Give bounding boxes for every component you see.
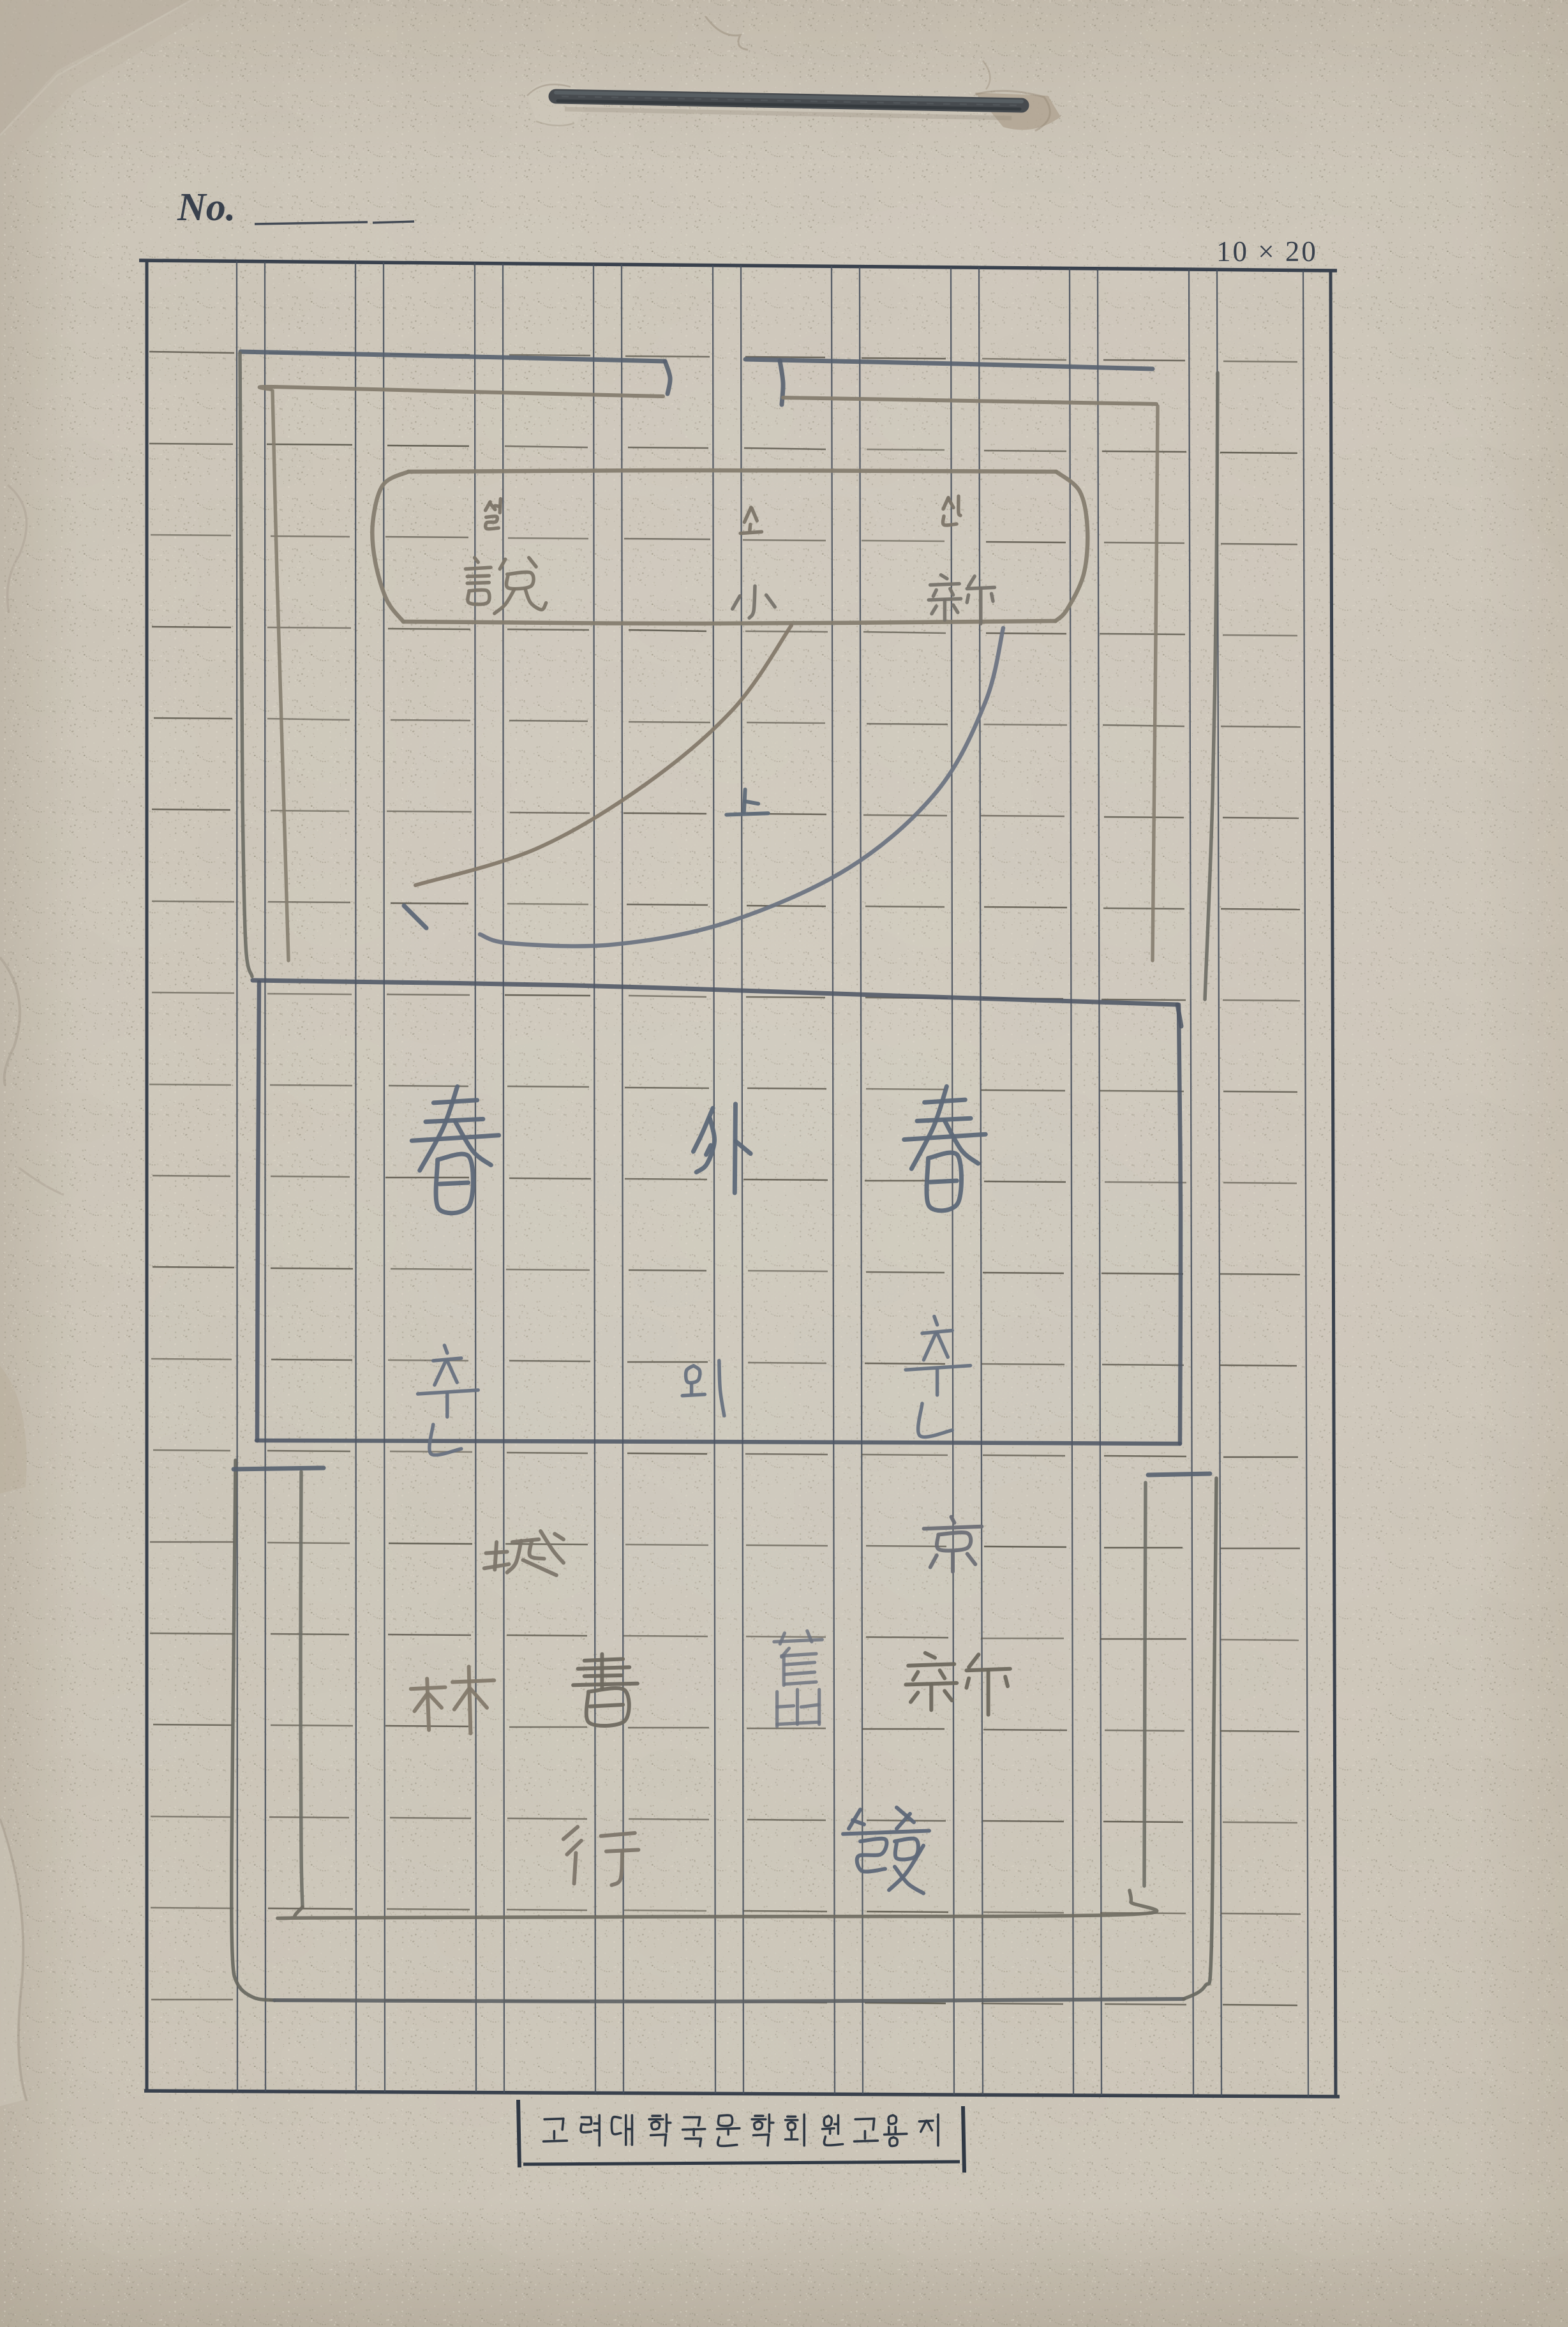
svg-text:No.: No. [177,186,235,229]
svg-text:10 × 20: 10 × 20 [1216,236,1318,267]
